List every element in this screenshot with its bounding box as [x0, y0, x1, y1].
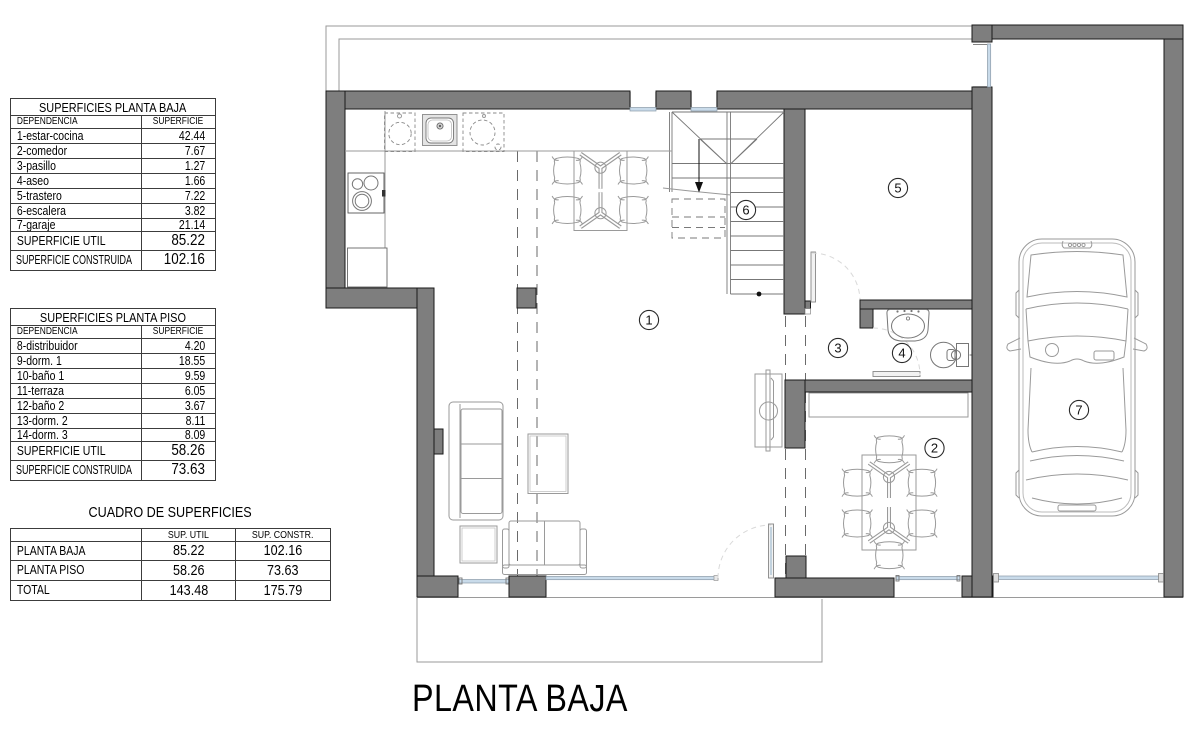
svg-text:4: 4	[898, 346, 905, 361]
svg-text:5: 5	[894, 181, 901, 196]
svg-text:6: 6	[742, 203, 749, 218]
svg-text:3: 3	[834, 341, 841, 356]
svg-text:2: 2	[931, 441, 938, 456]
svg-text:7: 7	[1075, 403, 1082, 418]
svg-text:1: 1	[645, 313, 652, 328]
